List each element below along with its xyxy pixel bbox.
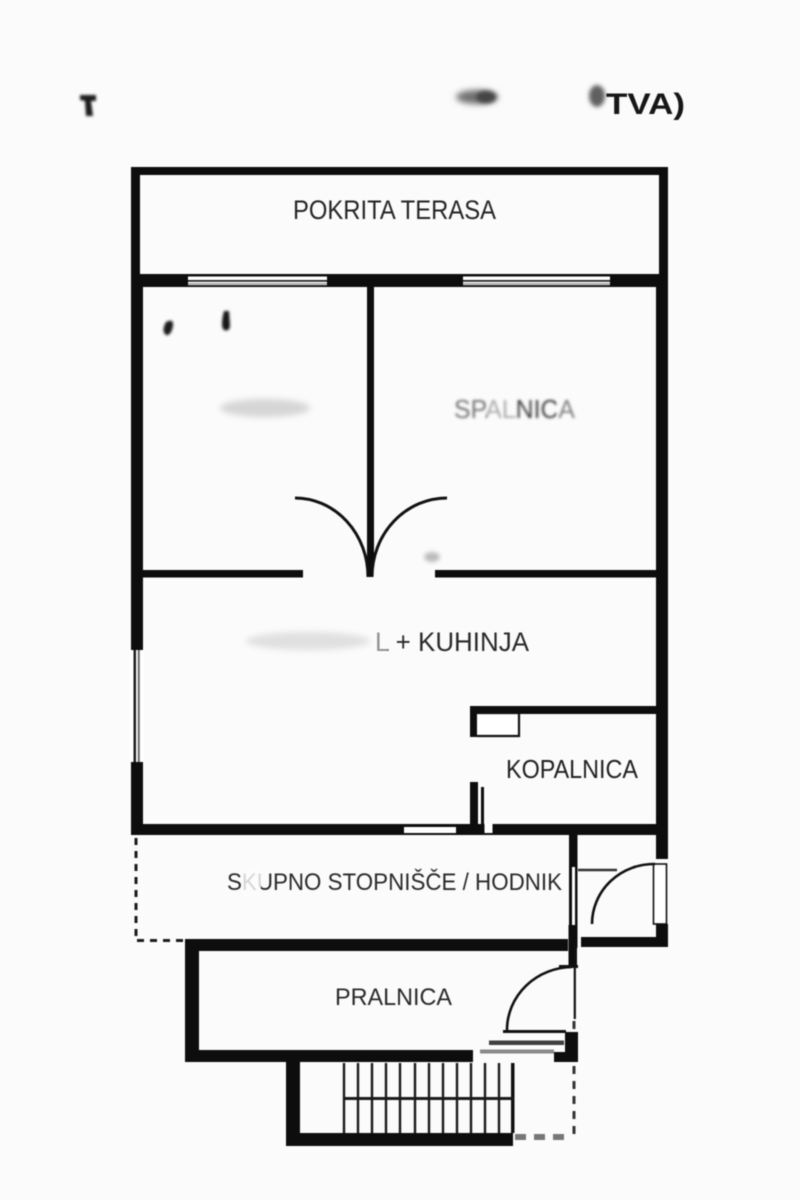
svg-text:SKUPNO STOPNIŠČE / HODNIK: SKUPNO STOPNIŠČE / HODNIK [227,868,562,896]
svg-text:TVA): TVA) [606,88,685,121]
svg-text:PRALNICA: PRALNICA [335,984,452,1011]
svg-text:KOPALNICA: KOPALNICA [506,754,639,784]
svg-text:POKRITA TERASA: POKRITA TERASA [293,195,496,225]
svg-text:L + KUHINJA: L + KUHINJA [375,627,529,657]
